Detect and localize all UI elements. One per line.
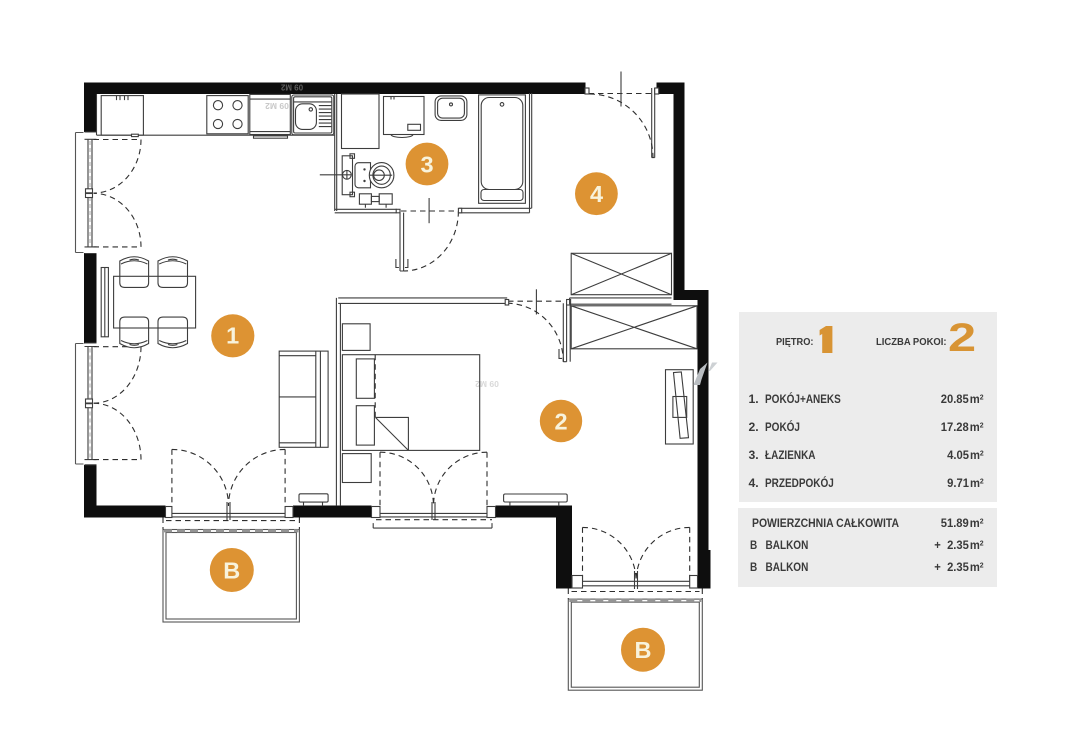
svg-text:B: B [635,637,652,663]
svg-text:1: 1 [226,323,239,349]
svg-text:09 M2: 09 M2 [280,83,303,92]
svg-text:09 M2: 09 M2 [475,379,499,389]
svg-text:2: 2 [554,409,567,435]
svg-text:4: 4 [590,181,603,207]
svg-text:09 M2: 09 M2 [265,101,289,111]
svg-text:3: 3 [420,152,433,178]
svg-text:B: B [223,558,240,584]
